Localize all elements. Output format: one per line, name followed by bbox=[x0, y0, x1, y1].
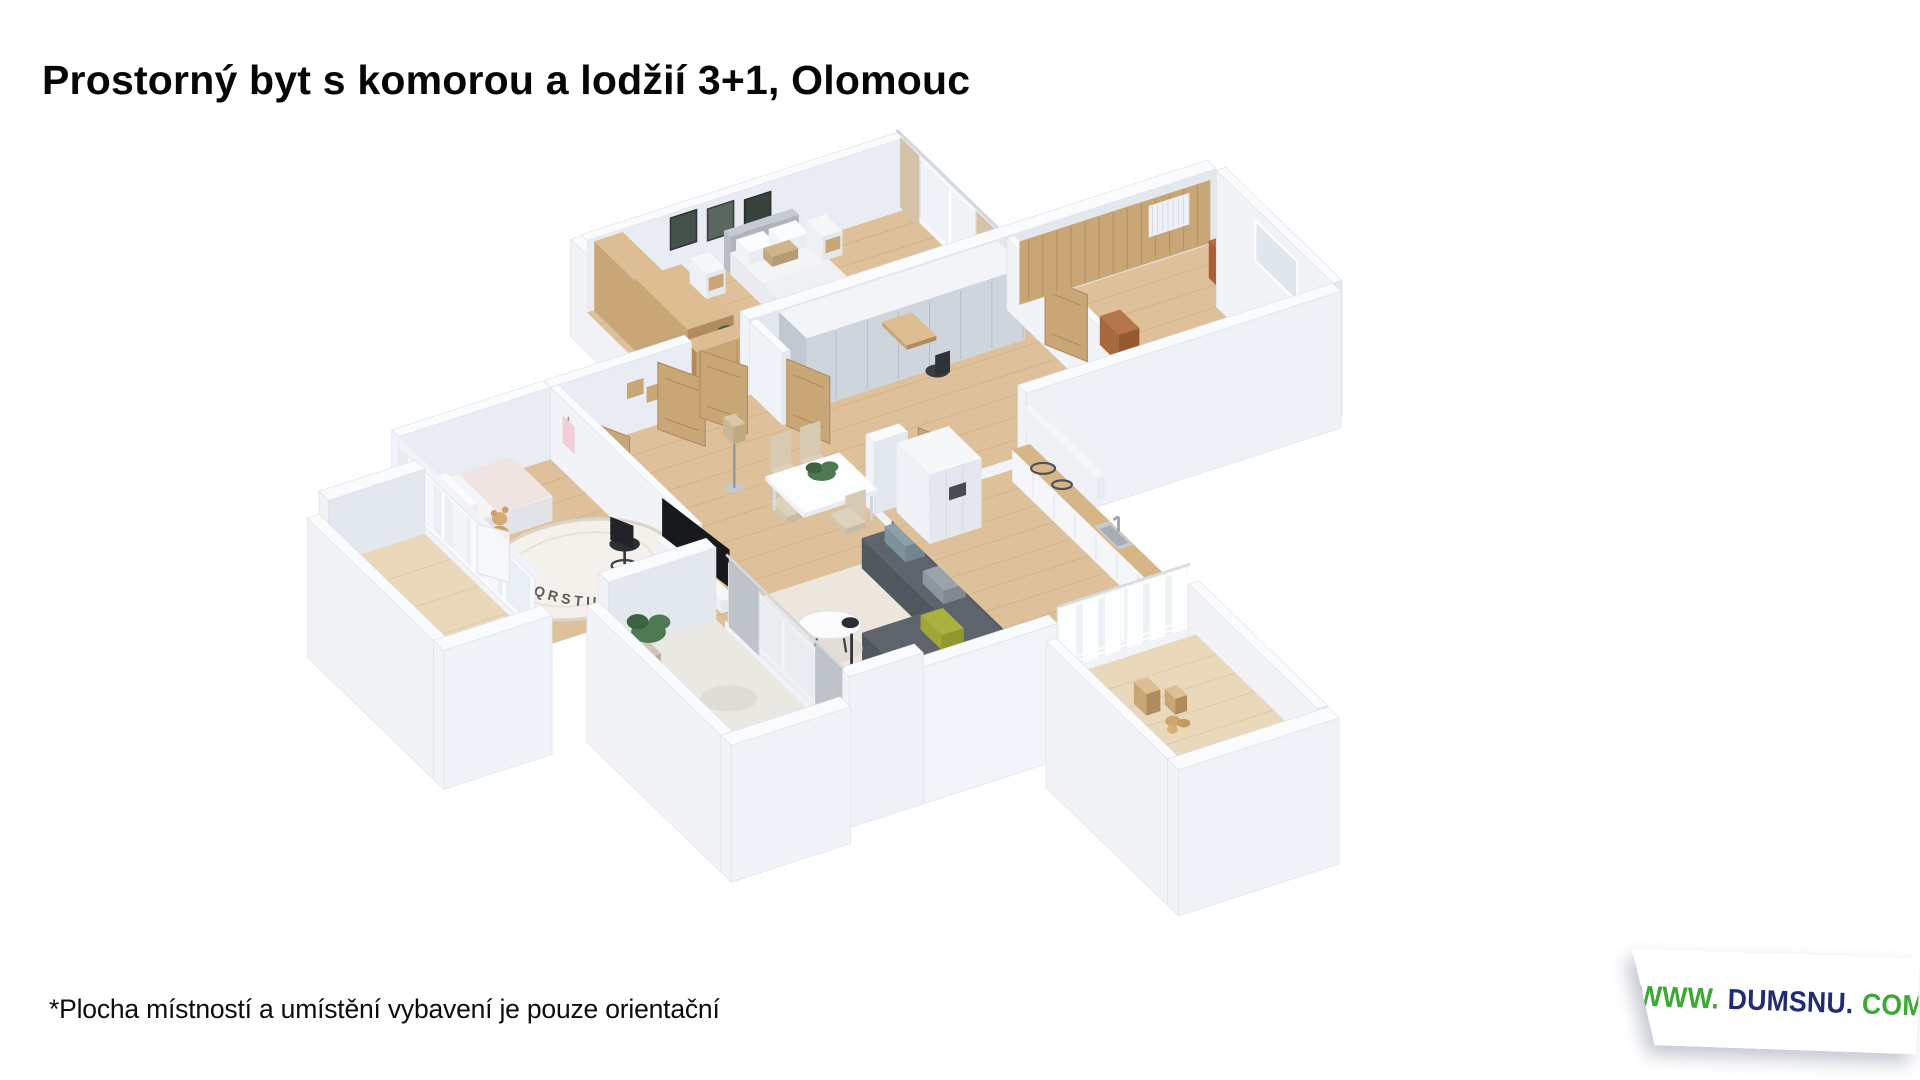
watermark-name: DUMSNU. bbox=[1727, 983, 1854, 1020]
disclaimer-note: *Plocha místností a umístění vybavení je… bbox=[49, 994, 720, 1025]
watermark-com: COM bbox=[1861, 988, 1920, 1023]
floorplan-svg: NOPQRSTUV bbox=[0, 0, 1920, 1080]
watermark-ribbon: WWW.DUMSNU.COM bbox=[1618, 948, 1920, 1044]
kitchen-loggia bbox=[1046, 564, 1339, 916]
watermark-www: WWW. bbox=[1636, 980, 1719, 1016]
watermark-ribbon-shape: WWW.DUMSNU.COM bbox=[1615, 948, 1920, 1054]
floorplan-render: NOPQRSTUV bbox=[0, 0, 1920, 1080]
listing-image: Prostorný byt s komorou a lodžií 3+1, Ol… bbox=[0, 0, 1920, 1080]
